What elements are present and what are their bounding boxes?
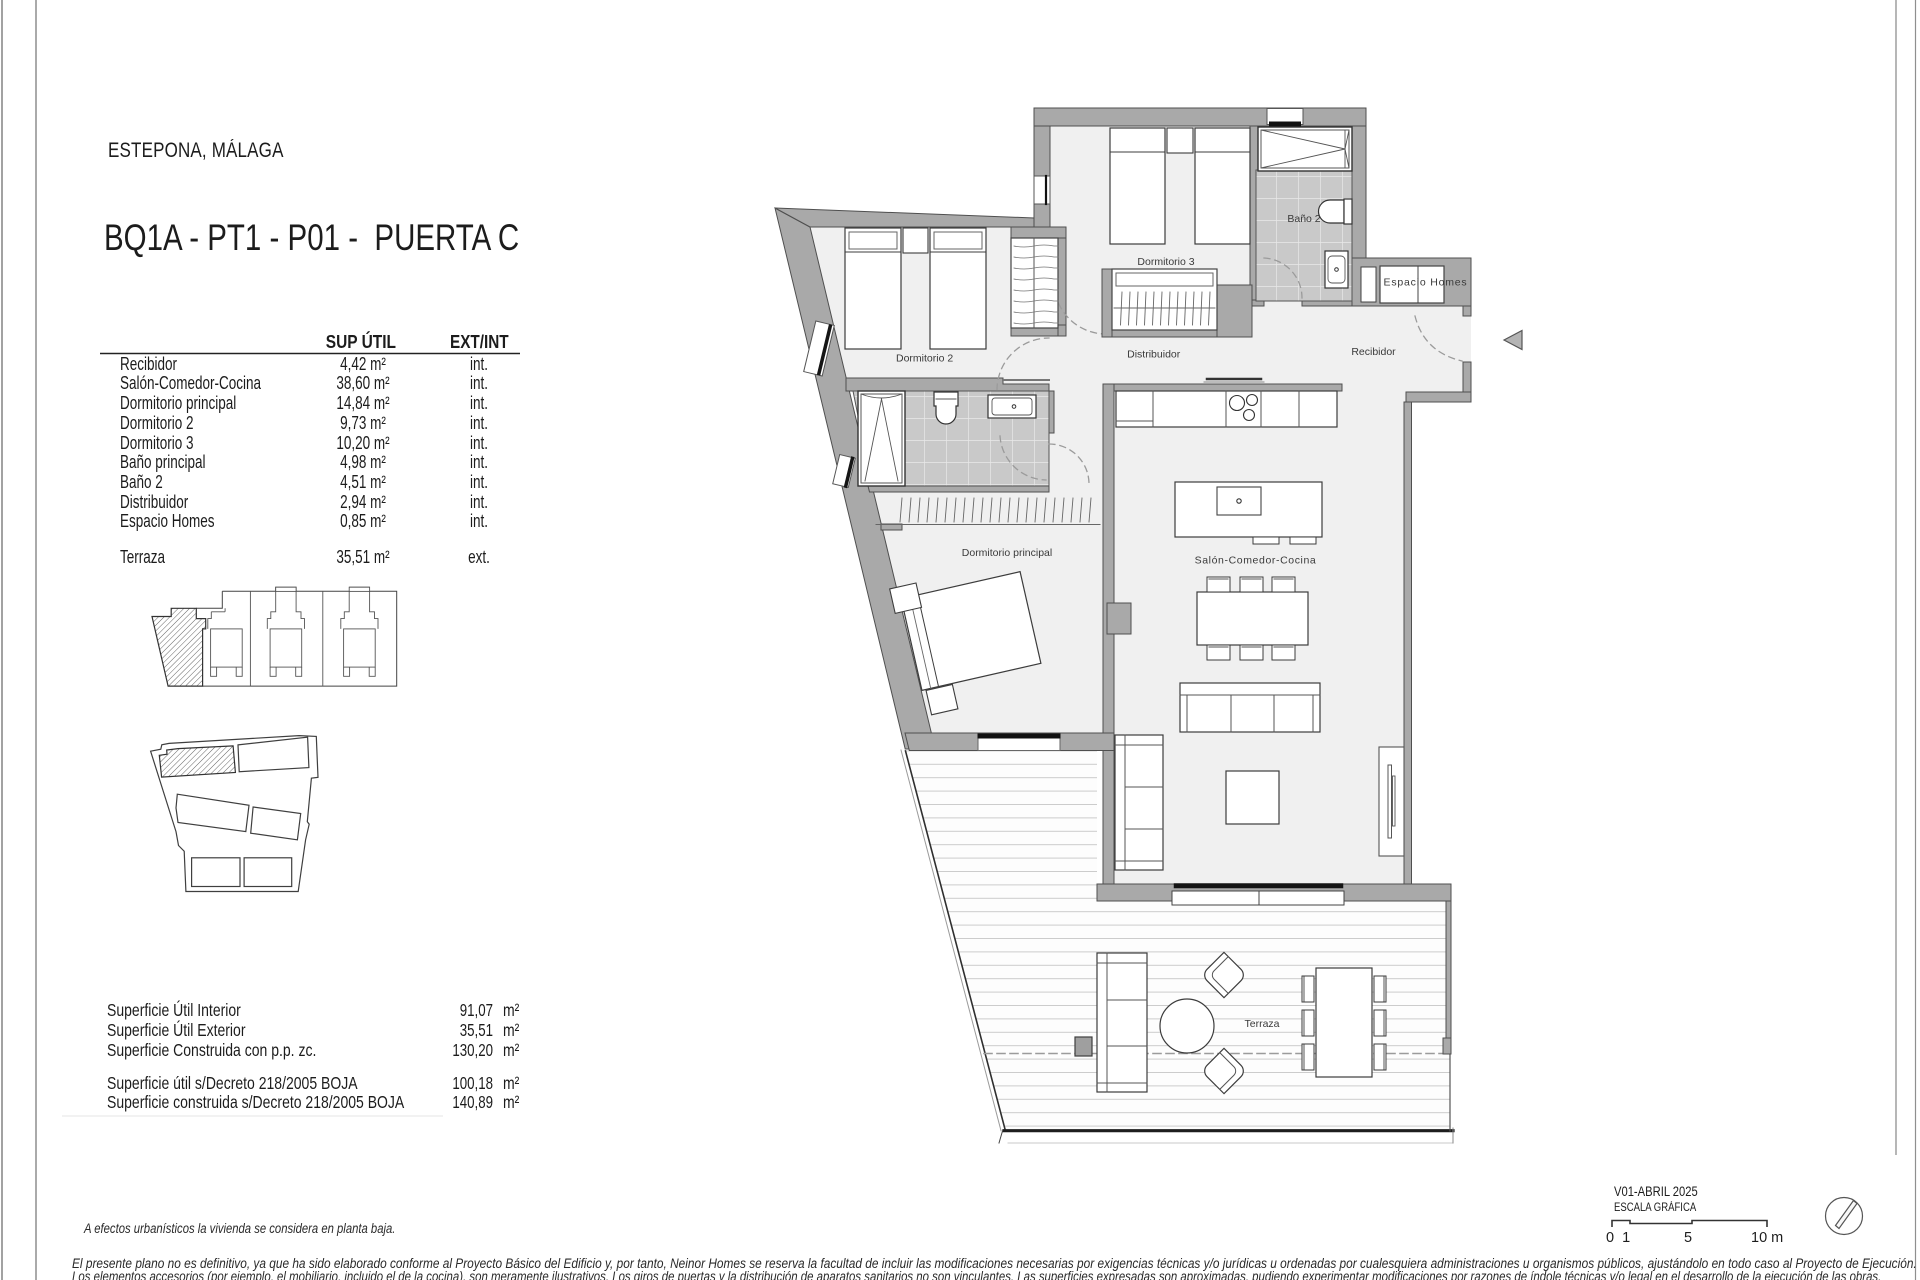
svg-text:Dormitorio principal: Dormitorio principal [962,547,1052,559]
svg-text:Baño 2: Baño 2 [1287,213,1320,225]
svg-text:Dormitorio 2: Dormitorio 2 [896,353,953,365]
svg-text:Salón-Comedor-Cocina: Salón-Comedor-Cocina [1195,555,1317,567]
svg-text:Distribuidor: Distribuidor [1127,349,1181,361]
svg-text:Recibidor: Recibidor [1351,346,1396,358]
svg-text:Terraza: Terraza [1244,1018,1279,1030]
svg-text:Espacio Homes: Espacio Homes [1384,277,1468,289]
svg-text:Dormitorio 3: Dormitorio 3 [1137,256,1194,268]
